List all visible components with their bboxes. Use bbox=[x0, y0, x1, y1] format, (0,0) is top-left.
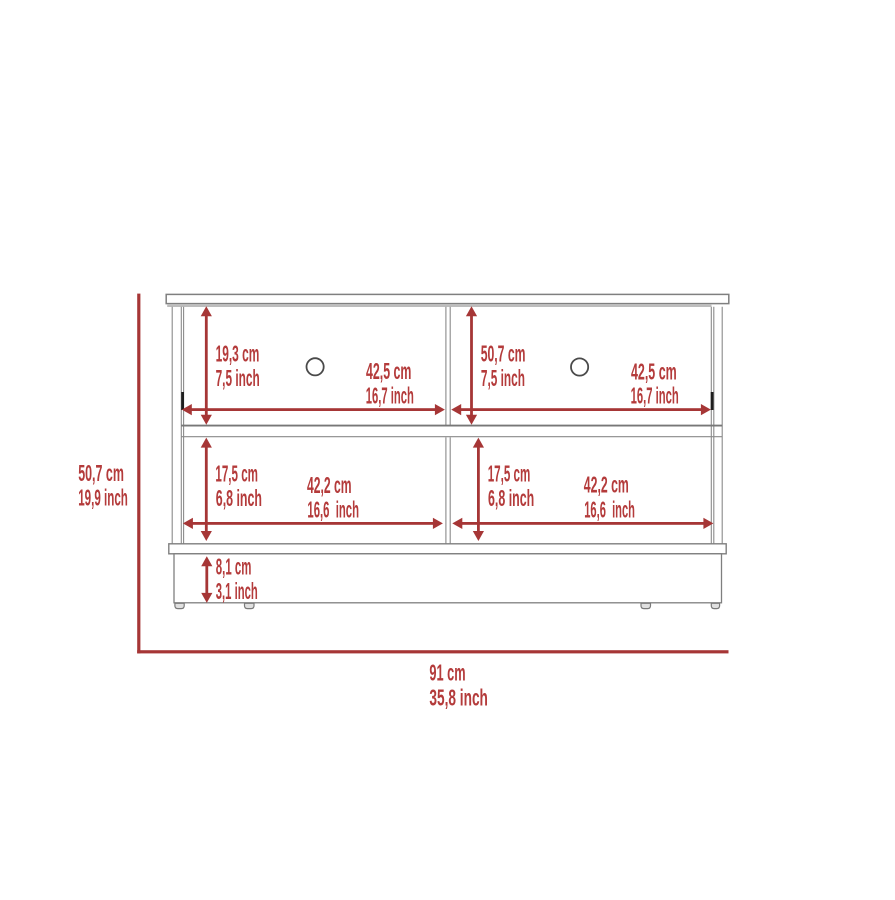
svg-text:7,5 inch: 7,5 inch bbox=[481, 365, 525, 391]
svg-text:50,7 cm: 50,7 cm bbox=[78, 460, 124, 486]
svg-text:6,8 inch: 6,8 inch bbox=[216, 485, 262, 511]
svg-text:42,2 cm: 42,2 cm bbox=[307, 472, 352, 498]
svg-text:91 cm: 91 cm bbox=[429, 659, 465, 685]
svg-text:6,8 inch: 6,8 inch bbox=[488, 485, 534, 511]
svg-text:42,2 cm: 42,2 cm bbox=[584, 472, 629, 498]
svg-text:42,5 cm: 42,5 cm bbox=[366, 358, 411, 384]
svg-text:35,8 inch: 35,8 inch bbox=[429, 684, 488, 710]
svg-text:17,5 cm: 17,5 cm bbox=[488, 461, 531, 487]
svg-text:7,5 inch: 7,5 inch bbox=[216, 365, 260, 391]
svg-text:16,6 inch: 16,6 inch bbox=[307, 496, 359, 522]
svg-text:16,7 inch: 16,7 inch bbox=[366, 383, 414, 409]
svg-text:3,1 inch: 3,1 inch bbox=[216, 578, 258, 604]
svg-text:17,5 cm: 17,5 cm bbox=[215, 460, 258, 486]
svg-text:50,7 cm: 50,7 cm bbox=[481, 341, 526, 367]
svg-text:42,5 cm: 42,5 cm bbox=[631, 358, 677, 384]
svg-text:16,6 inch: 16,6 inch bbox=[584, 496, 635, 522]
svg-text:8,1 cm: 8,1 cm bbox=[216, 554, 252, 580]
svg-text:19,3 cm: 19,3 cm bbox=[216, 341, 260, 367]
svg-text:19,9 inch: 19,9 inch bbox=[78, 484, 128, 510]
svg-text:16,7 inch: 16,7 inch bbox=[631, 383, 679, 409]
